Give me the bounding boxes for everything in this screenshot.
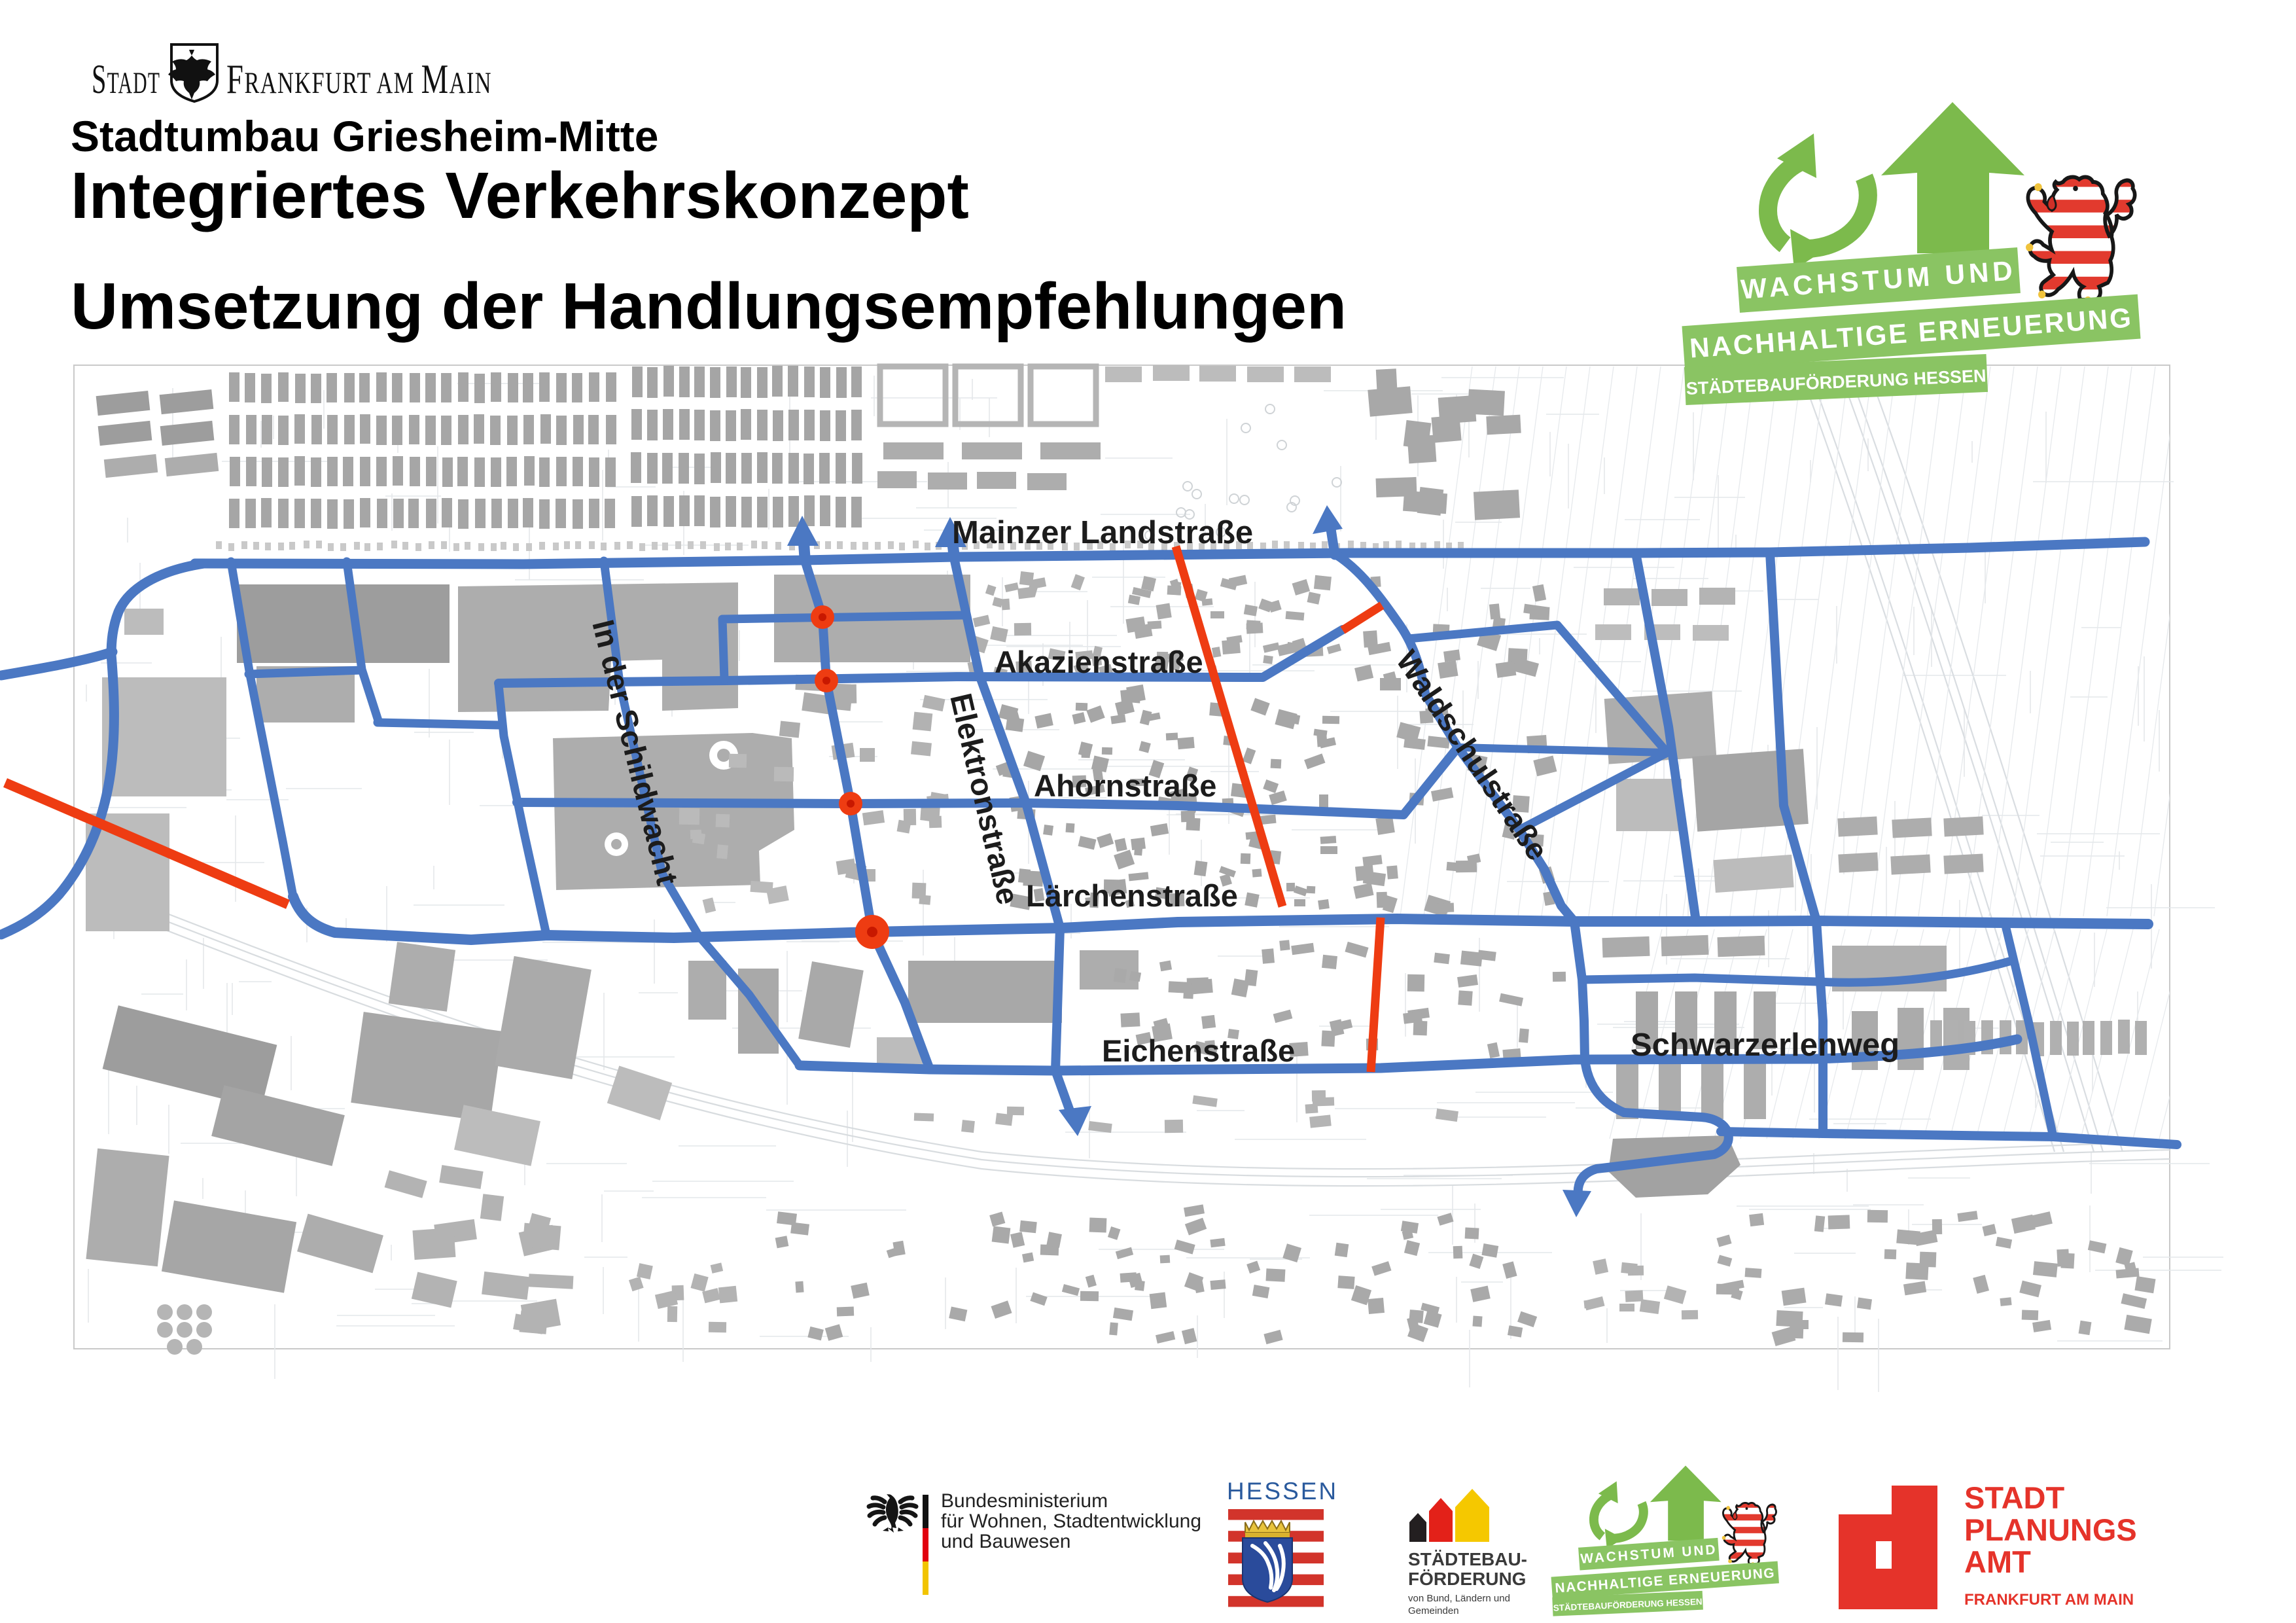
svg-text:FRANKFURT AM MAIN: FRANKFURT AM MAIN	[226, 56, 492, 103]
svg-text:HESSEN: HESSEN	[1227, 1478, 1338, 1505]
svg-text:Integriertes Verkehrskonzept: Integriertes Verkehrskonzept	[71, 159, 969, 232]
svg-text:Akazienstraße: Akazienstraße	[995, 645, 1203, 679]
svg-text:Mainzer Landstraße: Mainzer Landstraße	[952, 515, 1253, 550]
svg-text:AMT: AMT	[1964, 1544, 2031, 1579]
svg-text:Gemeinden: Gemeinden	[1408, 1605, 1459, 1616]
svg-text:und Bauwesen: und Bauwesen	[941, 1531, 1071, 1552]
svg-text:Bundesministerium: Bundesministerium	[941, 1490, 1108, 1512]
svg-text:von Bund, Ländern und: von Bund, Ländern und	[1408, 1593, 1510, 1604]
svg-text:Schwarzerlenweg: Schwarzerlenweg	[1631, 1027, 1899, 1063]
svg-text:STADT: STADT	[1964, 1480, 2064, 1515]
svg-text:Eichenstraße: Eichenstraße	[1102, 1033, 1295, 1068]
svg-text:Lärchenstraße: Lärchenstraße	[1026, 878, 1238, 913]
svg-text:STÄDTEBAU-: STÄDTEBAU-	[1408, 1549, 1527, 1569]
svg-text:für Wohnen, Stadtentwicklung: für Wohnen, Stadtentwicklung	[941, 1510, 1201, 1532]
svg-text:FRANKFURT AM MAIN: FRANKFURT AM MAIN	[1964, 1591, 2134, 1609]
svg-text:Umsetzung der Handlungsempfehl: Umsetzung der Handlungsempfehlungen	[71, 270, 1347, 343]
svg-text:STADT: STADT	[92, 56, 160, 103]
svg-text:Ahornstraße: Ahornstraße	[1034, 768, 1216, 803]
svg-text:FÖRDERUNG: FÖRDERUNG	[1408, 1569, 1526, 1589]
svg-text:Stadtumbau Griesheim-Mitte: Stadtumbau Griesheim-Mitte	[71, 112, 658, 160]
svg-text:PLANUNGS: PLANUNGS	[1964, 1512, 2137, 1547]
